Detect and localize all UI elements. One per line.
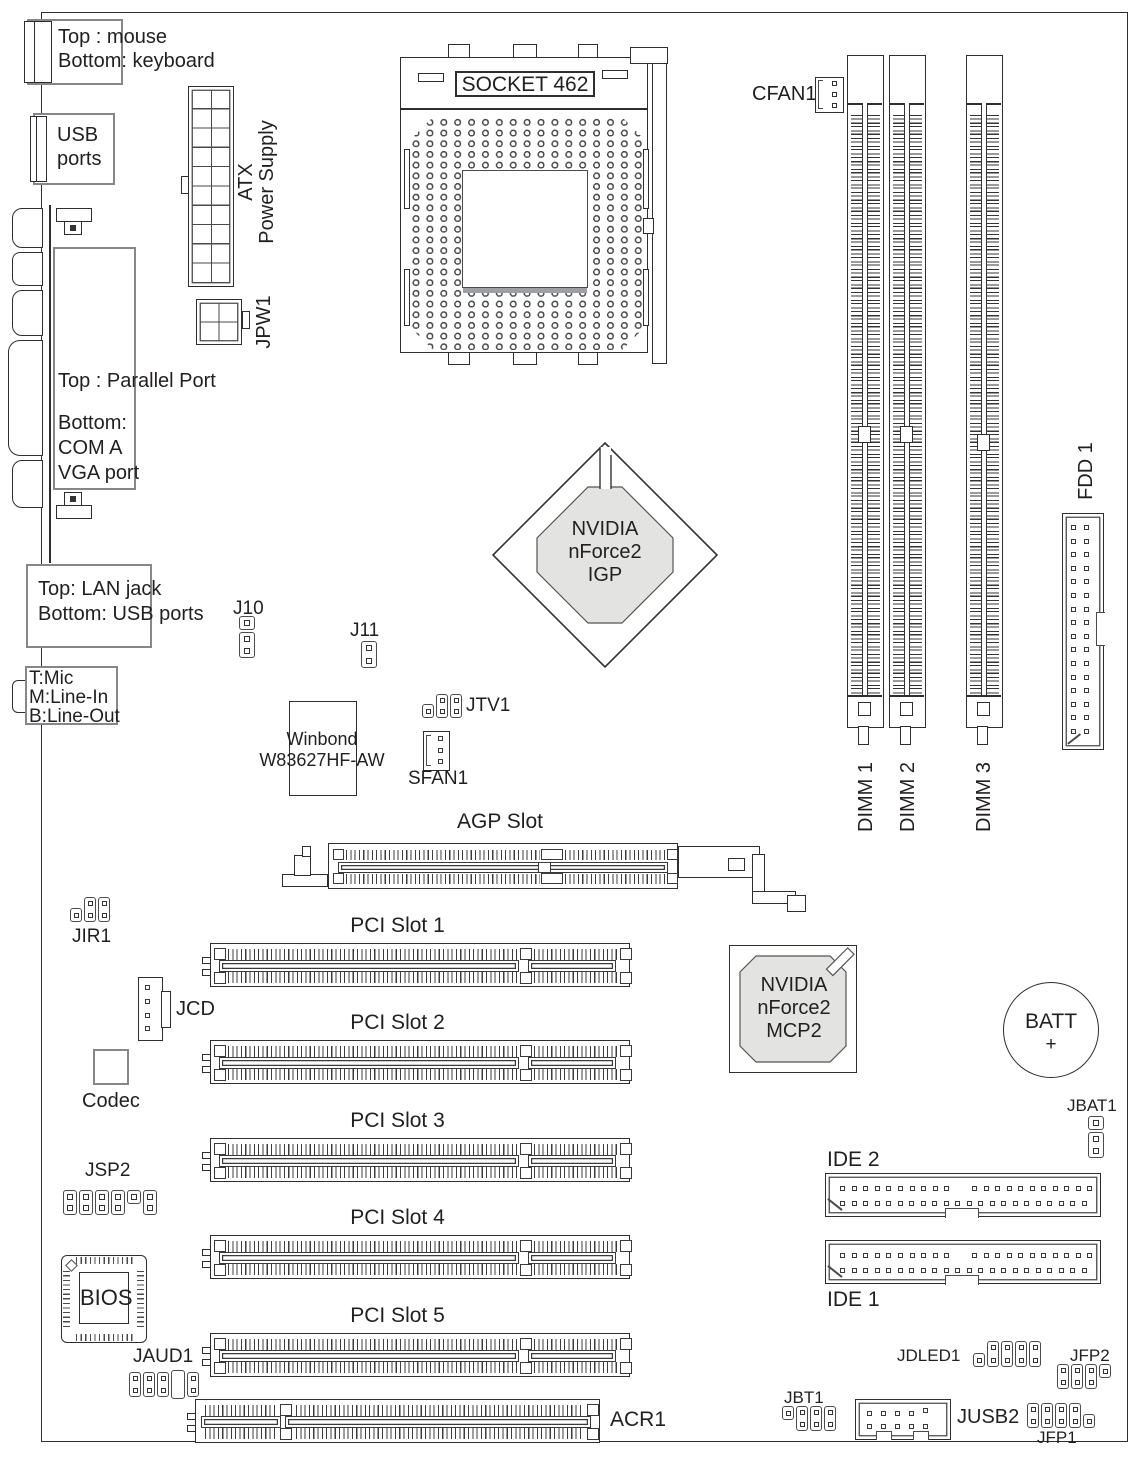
socket-slit-left-2 — [404, 269, 410, 326]
dimm1-slot — [847, 55, 884, 728]
agp-slot-body — [328, 843, 678, 889]
acr-channel-short — [201, 1416, 281, 1428]
atx-side-tab — [181, 176, 189, 194]
pci-key — [520, 1045, 532, 1057]
jsp2-col5 — [127, 1190, 141, 1204]
dimm2-contacts-right — [910, 115, 922, 695]
socket-center-bar — [463, 288, 587, 293]
mcp2-text: NVIDIA nForce2 MCP2 — [738, 974, 850, 1043]
j10-pin-block-1 — [239, 616, 255, 630]
mcp2-text-line2: nForce2 — [738, 997, 850, 1020]
pci5-slot — [210, 1333, 630, 1377]
pci-pins — [228, 1069, 518, 1080]
pci-pins — [534, 972, 618, 983]
pci-left-tab — [202, 1249, 211, 1256]
acr-left-tab — [187, 1413, 196, 1420]
socket-slit-right-2 — [643, 269, 649, 326]
dimm3-contacts-right — [987, 115, 999, 695]
pci3-slot — [210, 1138, 630, 1182]
acr-pins — [296, 1428, 584, 1439]
pci-key — [520, 1143, 532, 1155]
jdled1-label: JDLED1 — [897, 1346, 960, 1366]
cfan1-pin-1 — [832, 81, 837, 86]
pci-key — [214, 1069, 226, 1081]
jir1-label: JIR1 — [72, 926, 111, 948]
pci-pins — [534, 1241, 618, 1252]
pci4-label: PCI Slot 4 — [330, 1206, 465, 1230]
agp-latch-inner — [728, 858, 745, 871]
pci-pins — [534, 1264, 618, 1275]
pci-channel-short — [528, 1252, 616, 1264]
pci-key — [520, 948, 532, 960]
pci-key — [214, 1338, 226, 1350]
atx-label-line2: Power Supply — [257, 97, 278, 267]
jbat1-jumper — [1088, 1116, 1104, 1158]
pci-key — [214, 1143, 226, 1155]
lan-label-line2: Bottom: USB ports — [38, 603, 204, 626]
pci-left-tab — [202, 969, 211, 976]
jdled1-col1 — [973, 1353, 985, 1367]
acr-pins — [296, 1405, 584, 1416]
pci-left-tab — [202, 1261, 211, 1268]
jir1-col3 — [98, 897, 110, 922]
dimm1-latch — [858, 702, 871, 716]
dimm2-key-notch — [900, 426, 913, 443]
jdled1-header — [973, 1341, 1041, 1367]
jtv1-col3 — [450, 694, 462, 718]
pci-key — [520, 1264, 532, 1276]
lan-label-line1: Top: LAN jack — [38, 578, 161, 601]
pci-key — [620, 972, 632, 984]
dimm1-key-notch — [858, 426, 871, 443]
socket-lever-top — [630, 47, 668, 64]
jfp2-header — [1057, 1364, 1111, 1389]
usb-connector-tab — [30, 116, 47, 182]
bios-label: BIOS — [80, 1285, 133, 1310]
agp-channel — [338, 862, 668, 873]
codec-chip — [93, 1049, 129, 1085]
igp-text-line3: IGP — [535, 564, 675, 587]
pci2-slot — [210, 1040, 630, 1084]
parallel-label-line3: COM A — [58, 437, 122, 460]
pci4-slot — [210, 1235, 630, 1279]
jaud1-col2 — [143, 1372, 155, 1397]
parallel-label-line4: VGA port — [58, 462, 139, 485]
dimm1-contacts-right — [868, 115, 880, 695]
pci-key — [620, 1338, 632, 1350]
agp-pins-top-2 — [565, 850, 665, 860]
agp-key-bm — [541, 873, 563, 884]
sfan1-bracket — [426, 735, 431, 766]
battery-text-line2: + — [1003, 1034, 1099, 1056]
jbat1-label: JBAT1 — [1067, 1096, 1117, 1116]
jtv1-col2 — [436, 694, 448, 718]
jaud1-col1 — [129, 1372, 141, 1397]
pci-key — [520, 1362, 532, 1374]
acr-key — [587, 1404, 599, 1416]
dimm3-contacts-left — [970, 115, 982, 695]
screw-post-top-plate — [56, 208, 92, 222]
jfp2-col3 — [1085, 1364, 1097, 1389]
pci-pins — [228, 972, 518, 983]
pci-pins — [228, 1241, 518, 1252]
dimm3-label: DIMM 3 — [973, 754, 995, 840]
dimm1-label: DIMM 1 — [855, 754, 877, 840]
agp-bracket-b — [294, 855, 311, 876]
pci-key — [620, 1240, 632, 1252]
acr-left-tab — [187, 1425, 196, 1432]
jcd-step — [161, 991, 171, 1028]
usb-label-line1: USB — [57, 124, 98, 147]
pci-left-tab — [202, 1164, 211, 1171]
pci-pins — [534, 1046, 618, 1057]
ps2-tab-line — [34, 22, 35, 82]
dimm2-footer-line — [890, 695, 924, 697]
ide1-label: IDE 1 — [827, 1288, 880, 1312]
acr1-label: ACR1 — [610, 1408, 666, 1432]
agp-bracket-c — [302, 846, 311, 857]
ide2-pins-top-right — [972, 1186, 1092, 1191]
agp-channel-key — [538, 862, 551, 873]
jtv1-col1 — [422, 704, 434, 718]
dimm3-slot — [966, 55, 1003, 728]
jfp2-label: JFP2 — [1070, 1346, 1110, 1366]
agp-key-tl — [333, 849, 344, 860]
ps2-label-line1: Top : mouse — [58, 26, 167, 49]
igp-text-line1: NVIDIA — [535, 518, 675, 541]
jbt1-col3 — [810, 1406, 822, 1431]
pci-key — [214, 1362, 226, 1374]
pci-key — [620, 948, 632, 960]
dsub-bump-2 — [12, 252, 43, 286]
pci-key — [520, 1240, 532, 1252]
winbond-text-line2: W83627HF-AW — [239, 750, 405, 771]
pci2-label: PCI Slot 2 — [330, 1011, 465, 1035]
agp-latch-hook-end — [787, 895, 806, 912]
igp-text-line2: nForce2 — [535, 541, 675, 564]
socket-slot-right — [602, 70, 628, 79]
pci-key — [620, 1143, 632, 1155]
jsp2-col6 — [143, 1190, 157, 1215]
jfp2-col2 — [1071, 1364, 1083, 1389]
ps2-label-line2: Bottom: keyboard — [58, 50, 215, 73]
j10-jumper — [239, 616, 255, 658]
pci-channel-long — [219, 1350, 519, 1362]
jfp1-col5 — [1083, 1414, 1095, 1428]
agp-pins-bottom-1 — [346, 874, 540, 884]
pci-key — [620, 1069, 632, 1081]
pci-pins — [228, 949, 518, 960]
battery-text: BATT + — [1003, 1010, 1099, 1056]
dsub-bump-4 — [12, 460, 43, 508]
dimm3-key-notch — [977, 434, 990, 451]
jcd-connector — [138, 977, 163, 1041]
battery-text-line1: BATT — [1003, 1010, 1099, 1034]
pci-left-tab — [202, 1066, 211, 1073]
jaud1-header — [129, 1372, 199, 1399]
jfp1-col1 — [1027, 1403, 1039, 1428]
ide1-pins-top-left — [840, 1253, 949, 1258]
ps2-connector-tab — [24, 21, 52, 83]
pci5-label: PCI Slot 5 — [330, 1304, 465, 1328]
cfan1-label: CFAN1 — [752, 83, 816, 106]
pci-channel-long — [219, 960, 519, 972]
jpw1-side-tab — [242, 311, 250, 329]
jfp1-header — [1027, 1403, 1095, 1428]
ide2-pins-bottom — [840, 1201, 1087, 1206]
sfan1-pins — [438, 736, 443, 764]
jpw1-label: JPW1 — [254, 292, 274, 352]
dimm2-channel — [904, 103, 910, 695]
dimm1-footer-line — [848, 695, 882, 697]
pci-pins — [228, 1144, 518, 1155]
pci-left-tab — [202, 1152, 211, 1159]
pci-pins — [228, 1362, 518, 1373]
jfp2-col4 — [1099, 1364, 1111, 1378]
pci-key — [214, 972, 226, 984]
jusb2-pins-bottom — [867, 1424, 928, 1429]
screw-post-top-dot — [70, 225, 76, 231]
sfan1-label: SFAN1 — [408, 768, 468, 790]
acr-key — [280, 1404, 292, 1416]
j11-label: J11 — [350, 620, 379, 642]
jaud1-col5 — [187, 1372, 199, 1397]
dsub-bump-1 — [12, 208, 43, 248]
socket-center-hole — [462, 170, 588, 288]
jaud1-key-col — [171, 1370, 185, 1399]
jsp2-col3 — [95, 1190, 109, 1215]
mcp2-text-line3: MCP2 — [738, 1020, 850, 1043]
bios-leads-top — [76, 1257, 134, 1264]
pci-key — [620, 1264, 632, 1276]
jdled1-col4 — [1015, 1341, 1027, 1367]
agp-pins-top-1 — [346, 850, 540, 860]
ide1-bottom-notch — [945, 1275, 979, 1285]
socket-lever-tab — [643, 218, 654, 234]
jfp1-col3 — [1055, 1403, 1067, 1428]
pci1-slot — [210, 943, 630, 987]
igp-text: NVIDIA nForce2 IGP — [535, 518, 675, 587]
pci-pins — [534, 1339, 618, 1350]
jbt1-col2 — [796, 1406, 808, 1431]
dimm1-bottom-tab — [858, 726, 869, 745]
socket-label: SOCKET 462 — [462, 73, 589, 96]
pci-channel-long — [219, 1057, 519, 1069]
acr1-slot — [195, 1399, 600, 1443]
jsp2-col4 — [111, 1190, 125, 1215]
pci-key — [620, 1362, 632, 1374]
dimm3-footer-line — [967, 695, 1001, 697]
jdled1-col3 — [1001, 1341, 1013, 1367]
jsp2-col1 — [63, 1190, 77, 1215]
jsp2-header — [63, 1190, 157, 1215]
ide2-bottom-notch — [945, 1208, 979, 1218]
pci-pins — [228, 1046, 518, 1057]
jir1-header — [70, 897, 110, 922]
bios-die: BIOS — [79, 1272, 129, 1324]
jusb2-foot-notch-1 — [876, 1431, 892, 1440]
jir1-col1 — [70, 908, 82, 922]
jtv1-label: JTV1 — [466, 695, 510, 717]
jusb2-pins-top — [867, 1411, 928, 1416]
jcd-label: JCD — [176, 998, 215, 1021]
pci-key — [520, 1069, 532, 1081]
jfp1-label: JFP1 — [1037, 1428, 1077, 1448]
pci-pins — [228, 1167, 518, 1178]
pci-key — [620, 1167, 632, 1179]
acr-key — [587, 1428, 599, 1440]
usb-label-line2: ports — [57, 148, 101, 171]
dsub-bump-3 — [12, 290, 43, 336]
atx-power-connector — [188, 86, 234, 287]
socket-slit-left-1 — [404, 149, 410, 209]
pci1-label: PCI Slot 1 — [330, 914, 465, 938]
pci-channel-short — [528, 1057, 616, 1069]
fdd1-key-notch — [1096, 612, 1105, 646]
agp-key-bl — [333, 873, 344, 884]
jcd-pins — [145, 985, 150, 1031]
agp-latch-body — [678, 846, 760, 878]
dimm3-bottom-tab — [977, 726, 988, 745]
pci-channel-short — [528, 1155, 616, 1167]
jfp1-col2 — [1041, 1403, 1053, 1428]
jsp2-col2 — [79, 1190, 93, 1215]
dimm3-channel — [981, 103, 987, 695]
socket-header-line — [401, 108, 647, 110]
bracket-line — [49, 205, 51, 563]
screw-post-bottom-dot — [70, 496, 76, 502]
pci-pins — [228, 1264, 518, 1275]
jbt1-label: JBT1 — [784, 1388, 824, 1408]
pci-pins — [534, 1144, 618, 1155]
atx-label-line1: ATX — [236, 97, 257, 267]
jdled1-col5 — [1029, 1341, 1041, 1367]
socket-lever-bar — [652, 63, 667, 364]
atx-grid — [192, 90, 230, 283]
pci-channel-long — [219, 1252, 519, 1264]
j10-pin-block-2 — [239, 632, 255, 658]
pci-pins — [228, 1339, 518, 1350]
pci-pins — [534, 1069, 618, 1080]
pci-key — [520, 1338, 532, 1350]
dimm2-latch — [900, 702, 913, 716]
cfan1-pin-3 — [832, 103, 837, 108]
dimm3-latch — [977, 702, 990, 716]
agp-key-tr — [667, 849, 678, 860]
agp-pins-bottom-2 — [565, 874, 665, 884]
pci-pins — [534, 949, 618, 960]
screw-post-bottom-plate — [56, 505, 92, 519]
pci-key — [214, 948, 226, 960]
pci-left-tab — [202, 1054, 211, 1061]
dimm2-contacts-left — [893, 115, 905, 695]
jtv1-header — [422, 694, 462, 718]
jusb2-connector — [855, 1399, 951, 1440]
pci-left-tab — [202, 1347, 211, 1354]
j11-jumper — [361, 641, 377, 668]
jbt1-col4 — [824, 1406, 836, 1431]
pci-key — [214, 1045, 226, 1057]
pci-key — [520, 972, 532, 984]
jbt1-col1 — [782, 1406, 794, 1420]
parallel-label-line1: Top : Parallel Port — [58, 370, 216, 393]
dimm1-channel — [862, 103, 868, 695]
atx-label: ATX Power Supply — [236, 97, 280, 267]
fdd1-pins-right — [1084, 525, 1089, 734]
acr-pins — [205, 1405, 276, 1416]
jfp1-col4 — [1069, 1403, 1081, 1428]
jsp2-label: JSP2 — [85, 1160, 130, 1182]
dimm2-slot — [889, 55, 926, 728]
ide2-pins-top-left — [840, 1186, 949, 1191]
pci-channel-short — [528, 1350, 616, 1362]
pci-key — [214, 1167, 226, 1179]
pci-left-tab — [202, 1359, 211, 1366]
cfan1-bracket — [818, 80, 823, 109]
audio-label-line3: B:Line-Out — [29, 706, 120, 728]
ide1-pins-bottom — [840, 1268, 1087, 1273]
jusb2-foot-notch-2 — [913, 1431, 929, 1440]
socket-tab-bottom-1 — [448, 351, 470, 365]
jaud1-label: JAUD1 — [133, 1346, 193, 1368]
pci-key — [620, 1045, 632, 1057]
fdd1-label: FDD 1 — [1075, 436, 1097, 506]
jaud1-col3 — [157, 1372, 169, 1397]
pci-pins — [534, 1362, 618, 1373]
jfp2-col1 — [1057, 1364, 1069, 1389]
acr-pins — [205, 1428, 276, 1439]
dimm2-bottom-tab — [900, 726, 911, 745]
parallel-label-line2: Bottom: — [58, 412, 127, 435]
jbat1-pin-block-2 — [1088, 1132, 1104, 1158]
pci3-label: PCI Slot 3 — [330, 1109, 465, 1133]
bios-leads-right — [137, 1271, 144, 1327]
codec-label: Codec — [82, 1090, 140, 1113]
fdd1-pins-left — [1071, 525, 1076, 734]
jdled1-col2 — [987, 1341, 999, 1367]
pci-pins — [534, 1167, 618, 1178]
pci-left-tab — [202, 957, 211, 964]
winbond-text-line1: Winbond — [239, 729, 405, 750]
jpw1-connector — [196, 299, 242, 345]
usb-tab-line — [36, 117, 37, 181]
mcp2-text-line1: NVIDIA — [738, 974, 850, 997]
agp-key-tm — [541, 849, 563, 860]
acr-channel-long — [285, 1416, 591, 1428]
jir1-col2 — [84, 897, 96, 922]
dsub-body — [8, 340, 43, 456]
socket-label-box: SOCKET 462 — [455, 71, 595, 97]
pci-channel-long — [219, 1155, 519, 1167]
pci-key — [214, 1240, 226, 1252]
pci-channel-short — [528, 960, 616, 972]
dimm1-contacts-left — [851, 115, 863, 695]
socket-slit-right-1 — [643, 149, 649, 209]
pci-key — [520, 1167, 532, 1179]
jpw1-grid — [200, 303, 238, 341]
jusb2-label: JUSB2 — [957, 1406, 1019, 1429]
ide1-pins-top-right — [972, 1253, 1092, 1258]
agp-key-br — [667, 873, 678, 884]
dimm2-label: DIMM 2 — [897, 754, 919, 840]
pci-key — [214, 1264, 226, 1276]
socket-tab-bottom-2 — [513, 351, 537, 365]
acr-key — [280, 1428, 292, 1440]
ide2-label: IDE 2 — [827, 1148, 880, 1172]
socket-slot-left — [418, 73, 444, 82]
bios-leads-left — [63, 1271, 70, 1327]
winbond-text: Winbond W83627HF-AW — [239, 729, 405, 771]
